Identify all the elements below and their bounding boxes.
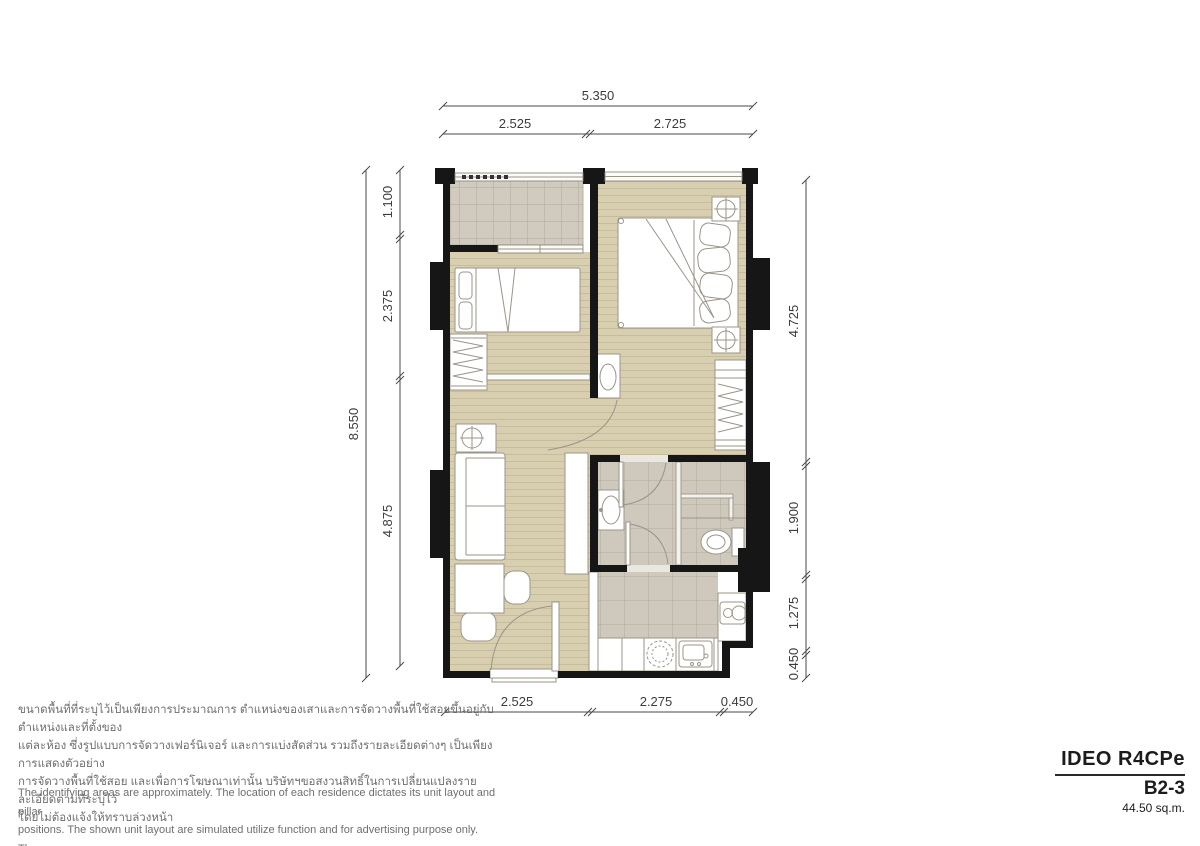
bed-double (618, 218, 738, 328)
unit-area: 44.50 sq.m. (925, 801, 1185, 815)
column-kitchen-corner (738, 548, 770, 592)
wall-bottom-right (558, 671, 730, 678)
dim-top-2: 2.725 (654, 116, 687, 131)
nightstand-lamp-bottom (712, 327, 740, 353)
column-top-left (435, 168, 455, 184)
bath-door-threshold-bottom (627, 565, 670, 572)
partition-bedroom2 (487, 374, 590, 380)
wardrobe-bedroom2 (450, 334, 487, 390)
dim-bottom-3: 0.450 (721, 694, 754, 709)
side-table-lamp (456, 424, 496, 452)
title-block: IDEO R4CPe B2-3 44.50 sq.m. (925, 748, 1185, 815)
column-left-lower (430, 470, 450, 558)
dim-right-4: 0.450 (786, 648, 801, 681)
dim-right-3: 1.275 (786, 597, 801, 630)
dim-bottom-2: 2.275 (640, 694, 673, 709)
wall-bathroom-left (590, 455, 598, 572)
wall-bathroom-top-left (598, 455, 620, 462)
column-left-upper (430, 262, 450, 330)
master-bedroom-window (605, 172, 742, 181)
wall-bathroom-bottom-right (670, 565, 746, 572)
disclaimer-english-line: The identifying areas are approximately.… (18, 784, 498, 821)
nightstand-lamp-top (712, 197, 740, 221)
project-name: IDEO R4CPe (925, 748, 1185, 771)
dim-left-2: 2.375 (380, 290, 395, 323)
wardrobe-master (715, 360, 746, 450)
disclaimer-english-line: positions. The shown unit layout are sim… (18, 821, 498, 846)
sofa (455, 453, 505, 560)
disclaimer-english: The identifying areas are approximately.… (18, 784, 498, 846)
floor-plan-page: 5.350 2.525 2.725 8.550 1.100 2.375 4.87… (0, 0, 1200, 846)
dim-top-1: 2.525 (499, 116, 532, 131)
dim-bottom-1: 2.525 (501, 694, 534, 709)
kitchen-floor (598, 572, 718, 638)
title-divider (1055, 774, 1185, 776)
dim-right-1: 4.725 (786, 305, 801, 338)
column-top-right (742, 168, 758, 184)
bath-door-threshold-top (620, 455, 668, 462)
dim-left-1: 1.100 (380, 186, 395, 219)
bed-single (455, 268, 580, 332)
wall-spine (590, 170, 598, 398)
kitchen-sink (679, 641, 712, 667)
dim-left-overall: 8.550 (346, 408, 361, 441)
unit-number: B2-3 (925, 778, 1185, 800)
stove (718, 593, 746, 641)
tv-console (565, 453, 588, 574)
disclaimer-thai-line: ขนาดพื้นที่ที่ระบุไว้เป็นเพียงการประมาณก… (18, 701, 498, 737)
wall-balcony-divider (443, 245, 498, 252)
hall-door-gap-floor (590, 398, 598, 455)
balcony-floor (450, 178, 583, 245)
dim-left-3: 4.875 (380, 505, 395, 538)
disclaimer-thai-line: แต่ละห้อง ซึ่งรูปแบบการจัดวางเฟอร์นิเจอร… (18, 737, 498, 773)
balcony-sliding-door (498, 245, 583, 253)
toilet (701, 528, 744, 556)
wall-bottom-left (443, 671, 490, 678)
column-right-upper (746, 258, 770, 330)
wall-bathroom-bottom-left (598, 565, 627, 572)
dim-right-2: 1.900 (786, 502, 801, 535)
wall-step-horizontal (730, 641, 753, 648)
balcony-railing (455, 173, 583, 181)
column-right-lower (746, 462, 770, 548)
wall-bathroom-top-right (668, 455, 746, 462)
dim-top-overall: 5.350 (582, 88, 615, 103)
column-top-middle (583, 168, 605, 184)
